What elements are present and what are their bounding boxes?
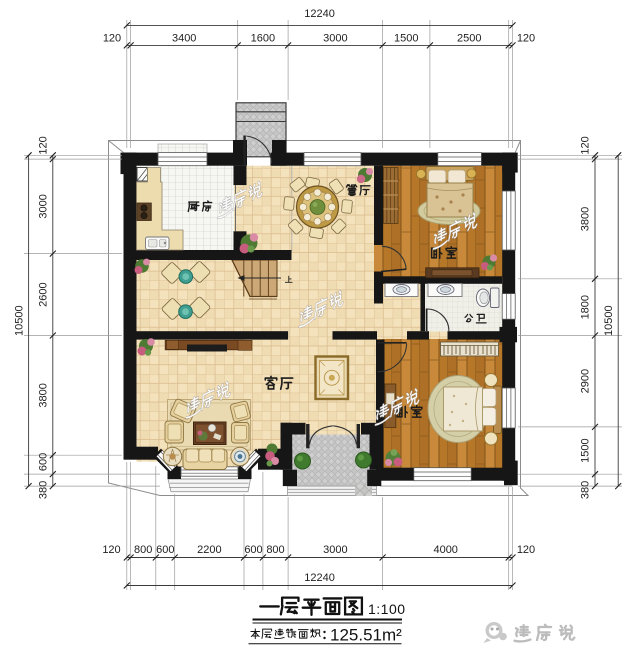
svg-text:3000: 3000	[323, 33, 347, 45]
svg-text:12240: 12240	[304, 8, 335, 20]
svg-text:380: 380	[580, 481, 592, 499]
svg-text:1:100: 1:100	[368, 601, 406, 617]
svg-text:600: 600	[38, 453, 50, 471]
svg-text:3400: 3400	[172, 33, 196, 45]
svg-text:800: 800	[266, 544, 284, 556]
svg-text:10500: 10500	[13, 305, 25, 336]
svg-text:1500: 1500	[394, 33, 418, 45]
svg-text:600: 600	[244, 544, 262, 556]
svg-text:380: 380	[38, 481, 50, 499]
svg-text:3000: 3000	[323, 544, 347, 556]
svg-text:125.51m²: 125.51m²	[330, 626, 402, 645]
svg-text:120: 120	[102, 544, 120, 556]
svg-text:2600: 2600	[38, 282, 50, 306]
svg-text:800: 800	[134, 544, 152, 556]
svg-text:4000: 4000	[433, 544, 457, 556]
svg-text:2200: 2200	[197, 544, 221, 556]
svg-text:3800: 3800	[580, 207, 592, 231]
svg-text:1800: 1800	[580, 295, 592, 319]
svg-text:1500: 1500	[580, 438, 592, 462]
svg-text:1600: 1600	[251, 33, 275, 45]
svg-text:2500: 2500	[457, 33, 481, 45]
svg-text:600: 600	[156, 544, 174, 556]
svg-text:120: 120	[103, 33, 121, 45]
svg-text:120: 120	[38, 136, 50, 154]
svg-text:12240: 12240	[304, 572, 335, 584]
svg-text:3800: 3800	[38, 383, 50, 407]
svg-text:120: 120	[517, 544, 535, 556]
svg-text:120: 120	[580, 136, 592, 154]
svg-text:10500: 10500	[603, 305, 615, 336]
svg-text:3000: 3000	[38, 194, 50, 218]
svg-text:2900: 2900	[580, 369, 592, 393]
svg-text:120: 120	[517, 33, 535, 45]
